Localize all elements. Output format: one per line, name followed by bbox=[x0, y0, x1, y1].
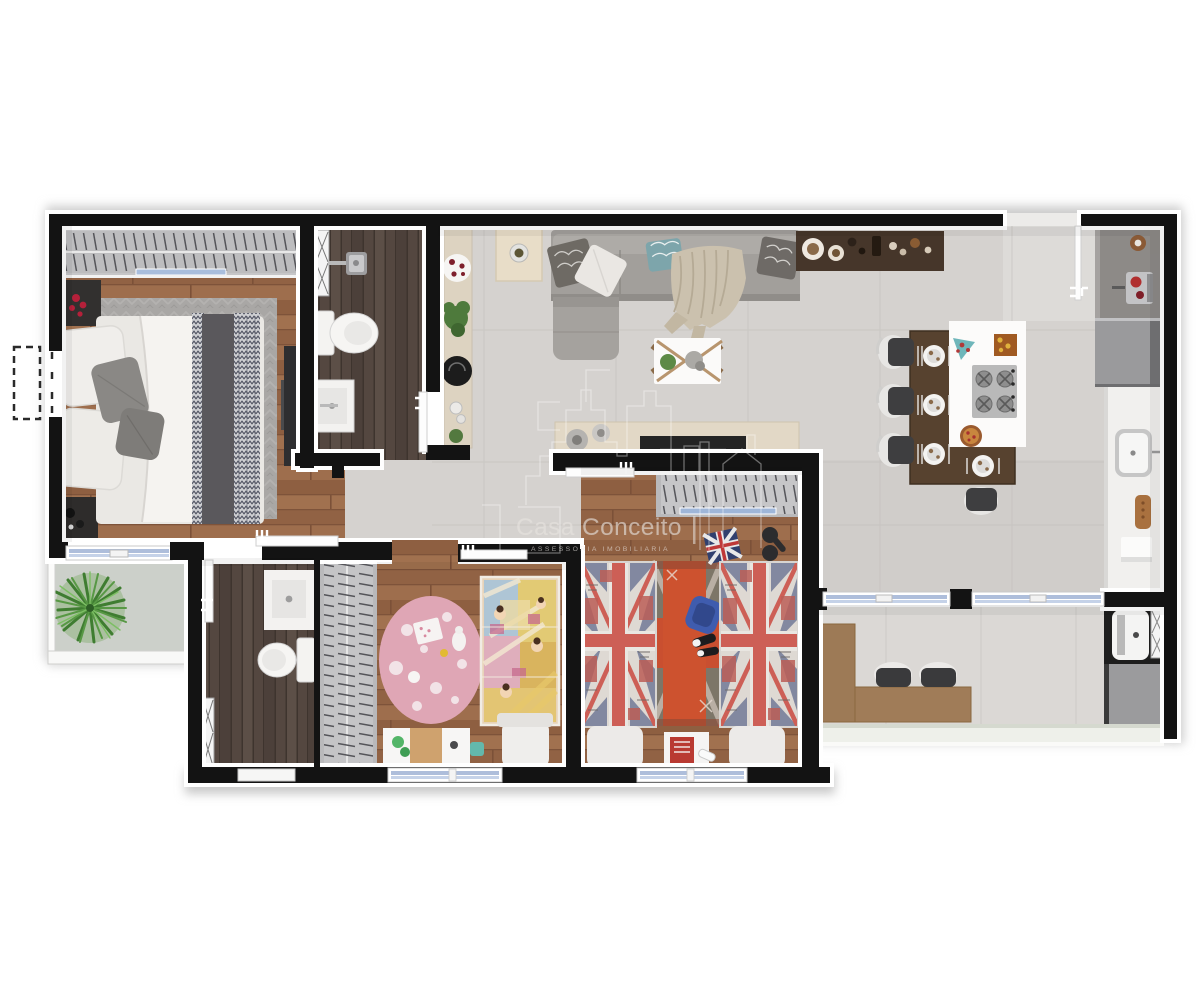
svg-text:Casa Conceito: Casa Conceito bbox=[516, 514, 682, 541]
svg-text:ASSESSORIA IMOBILIARIA: ASSESSORIA IMOBILIARIA bbox=[531, 546, 670, 553]
